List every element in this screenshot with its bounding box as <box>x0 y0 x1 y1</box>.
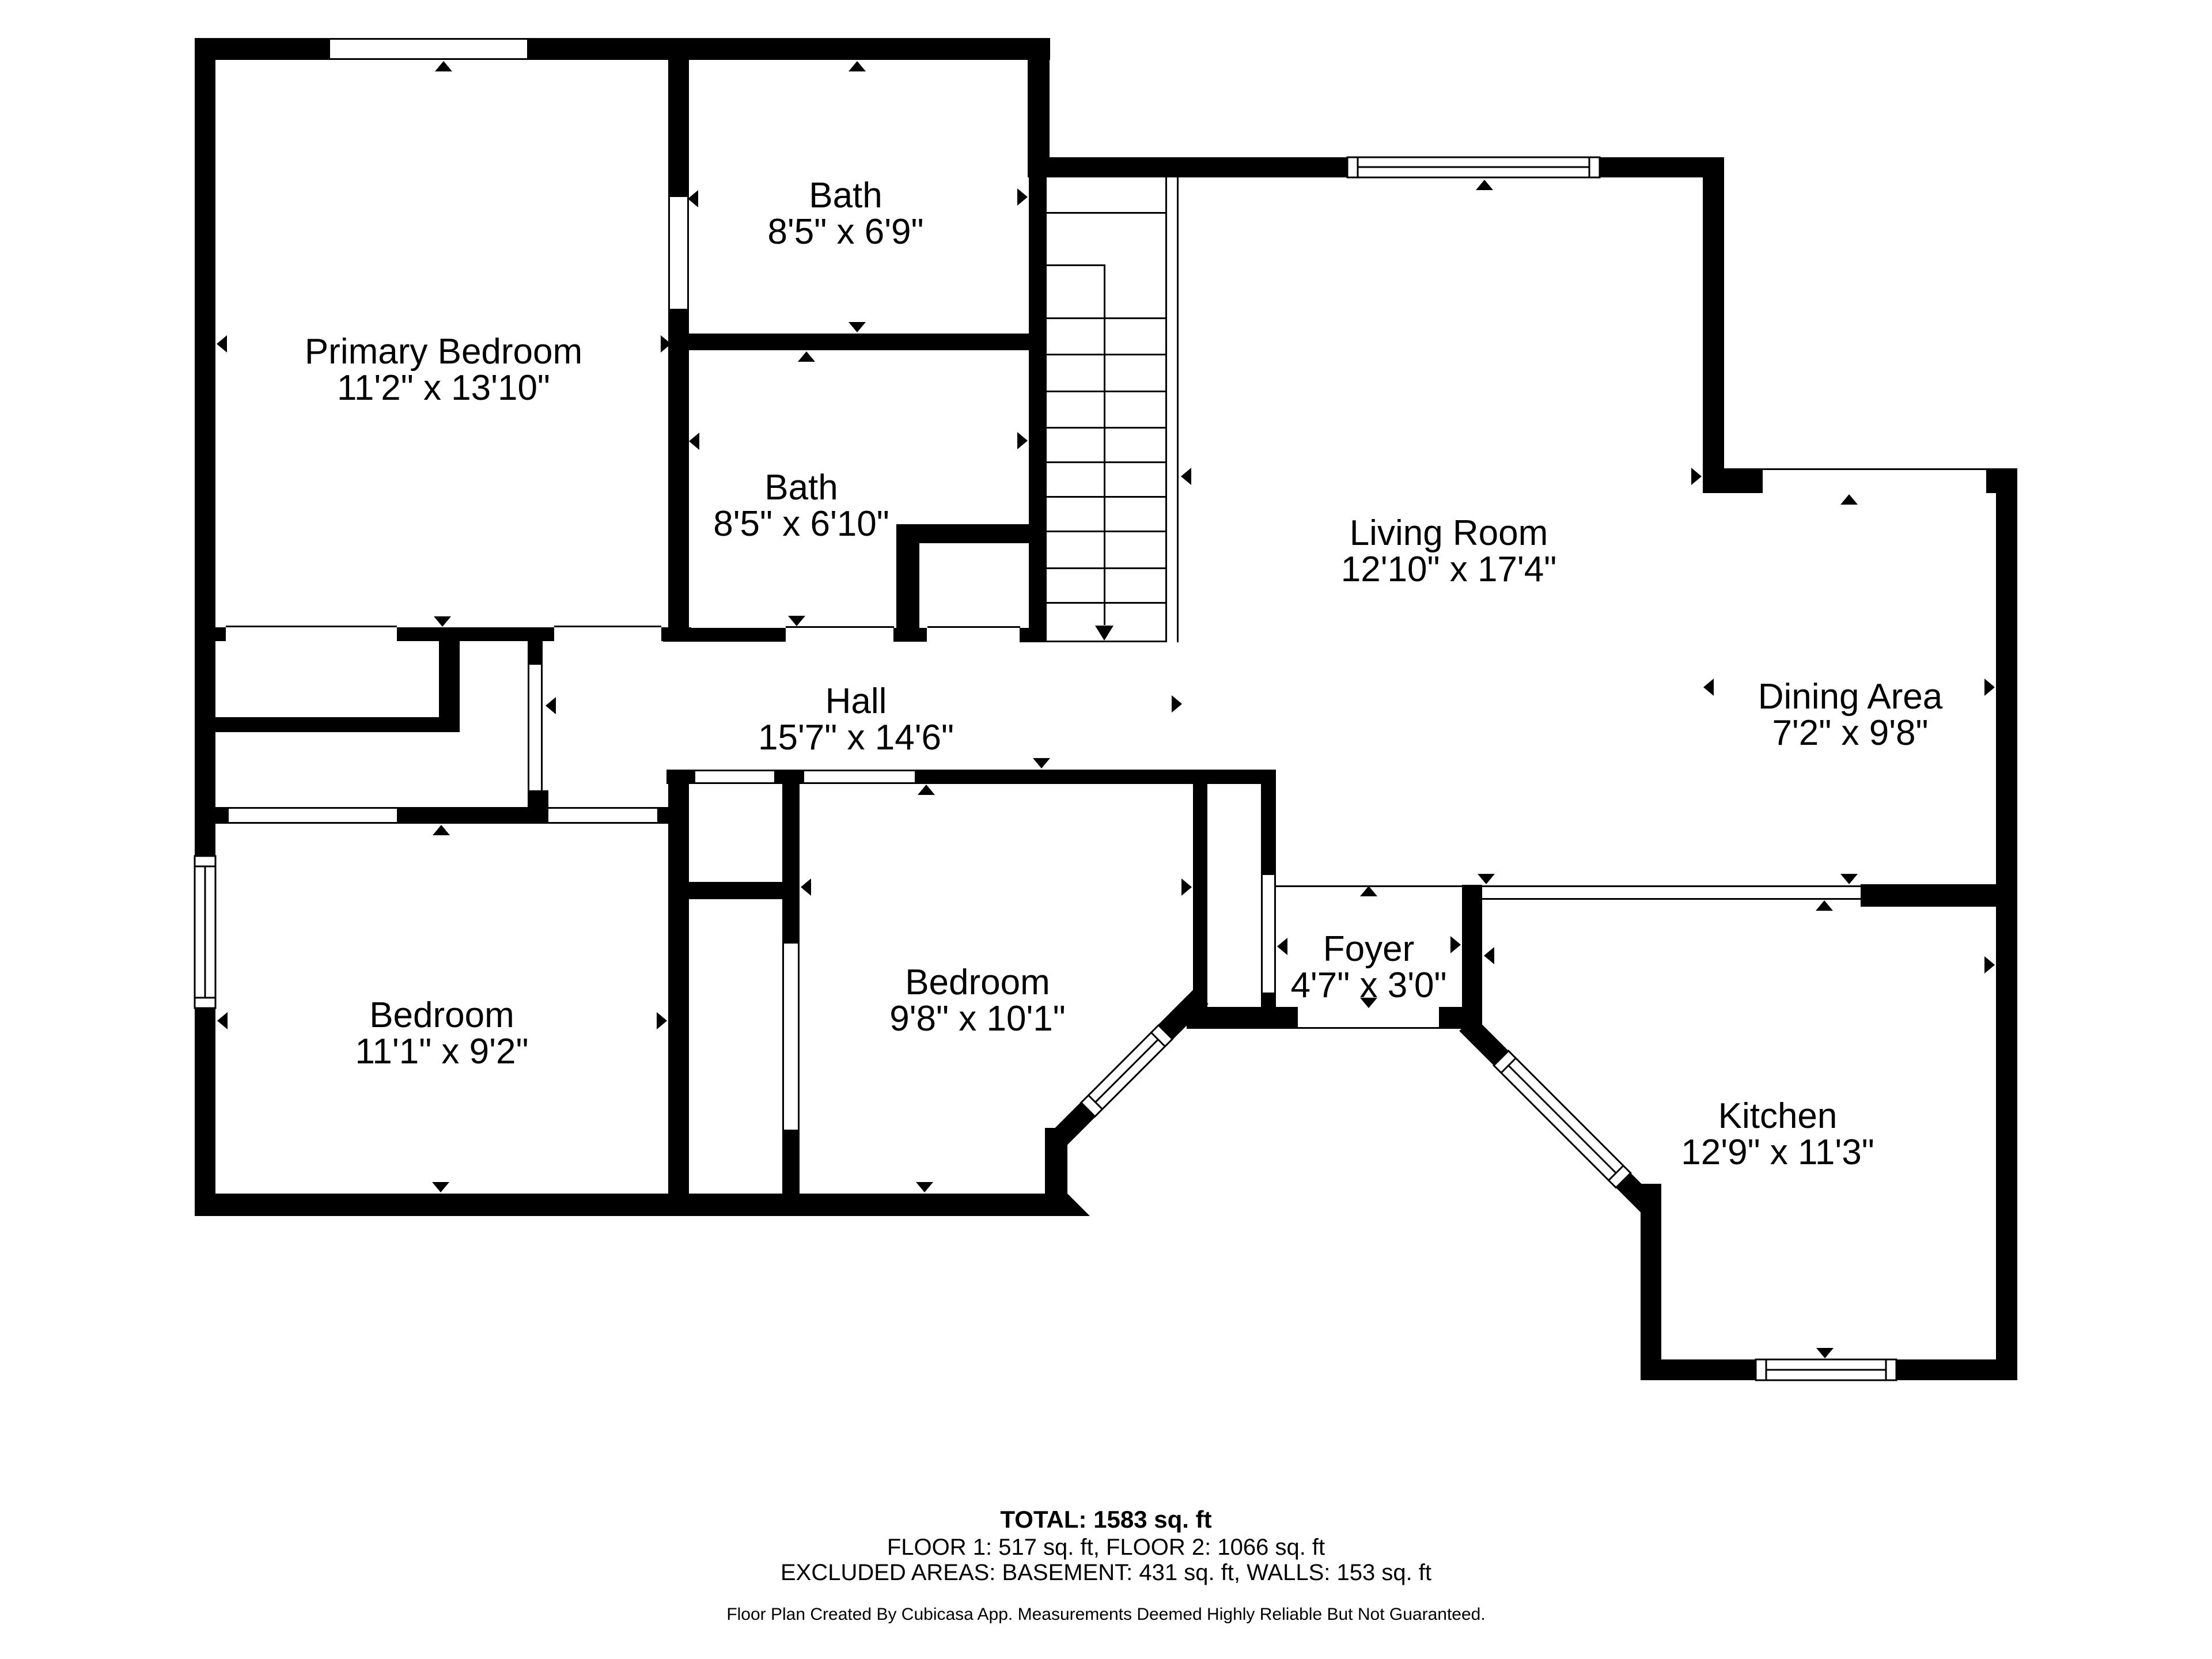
svg-text:Hall: Hall <box>825 681 887 721</box>
svg-text:FLOOR 1: 517 sq. ft, FLOOR 2:: FLOOR 1: 517 sq. ft, FLOOR 2: 1066 sq. f… <box>887 1535 1325 1560</box>
svg-text:8'5" x 6'10": 8'5" x 6'10" <box>713 504 889 544</box>
svg-text:Floor Plan Created By Cubicasa: Floor Plan Created By Cubicasa App. Meas… <box>726 1605 1485 1624</box>
svg-text:Dining Area: Dining Area <box>1758 677 1943 717</box>
svg-text:11'1" x 9'2": 11'1" x 9'2" <box>355 1032 529 1071</box>
svg-text:12'9" x 11'3": 12'9" x 11'3" <box>1681 1132 1874 1172</box>
svg-text:TOTAL: 1583 sq. ft: TOTAL: 1583 sq. ft <box>1000 1506 1211 1533</box>
svg-text:Bedroom: Bedroom <box>905 963 1050 1002</box>
svg-text:EXCLUDED AREAS: BASEMENT: 431: EXCLUDED AREAS: BASEMENT: 431 sq. ft, WA… <box>781 1560 1431 1585</box>
svg-text:Foyer: Foyer <box>1323 929 1414 969</box>
svg-text:11'2" x 13'10": 11'2" x 13'10" <box>337 368 550 408</box>
svg-text:9'8" x 10'1": 9'8" x 10'1" <box>889 999 1066 1039</box>
svg-text:8'5" x 6'9": 8'5" x 6'9" <box>767 212 923 252</box>
svg-text:Kitchen: Kitchen <box>1718 1096 1838 1136</box>
svg-text:Bath: Bath <box>809 176 882 215</box>
svg-text:15'7" x 14'6": 15'7" x 14'6" <box>758 718 954 757</box>
svg-text:Bedroom: Bedroom <box>369 995 514 1035</box>
svg-text:4'7" x 3'0": 4'7" x 3'0" <box>1290 965 1446 1005</box>
svg-text:Bath: Bath <box>764 468 838 507</box>
svg-text:Living Room: Living Room <box>1350 513 1548 553</box>
svg-text:12'10" x 17'4": 12'10" x 17'4" <box>1341 550 1557 589</box>
svg-text:Primary Bedroom: Primary Bedroom <box>305 332 582 372</box>
svg-text:7'2" x 9'8": 7'2" x 9'8" <box>1772 713 1928 753</box>
